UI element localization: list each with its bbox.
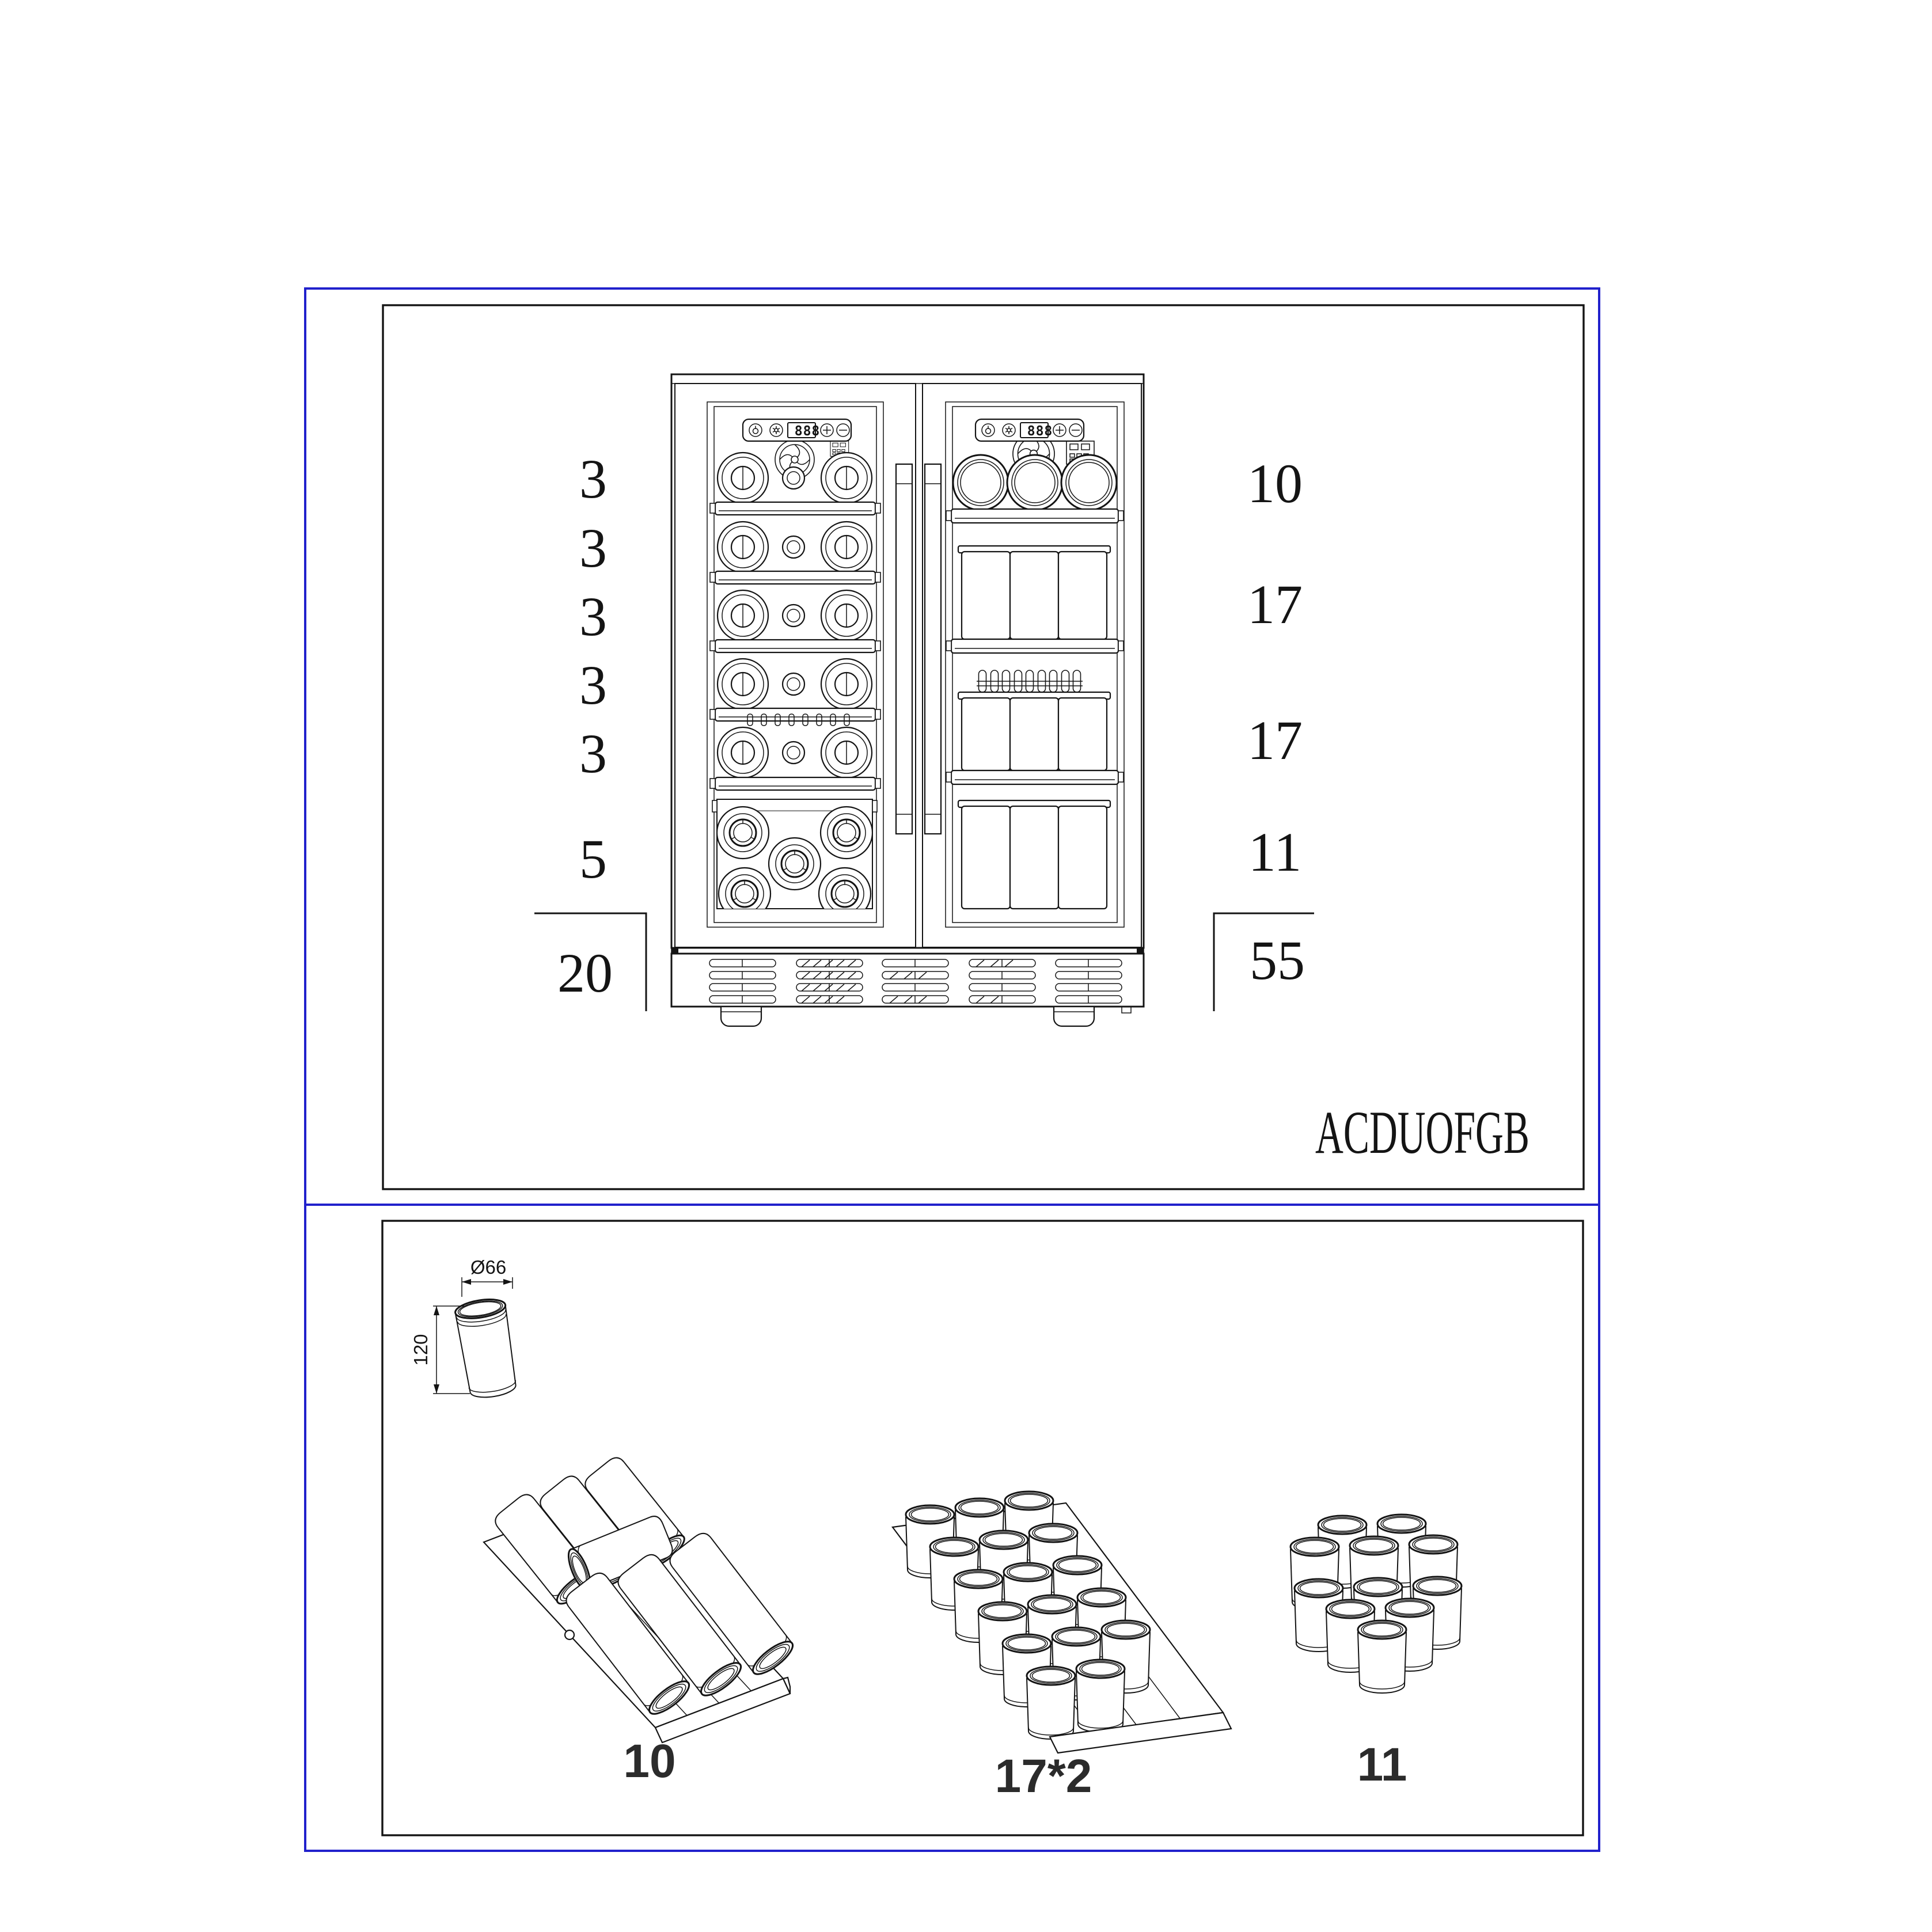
wine-shelf: [710, 640, 880, 652]
right-door-handle: [925, 464, 941, 834]
wine-bottle-row: [718, 659, 872, 709]
wine-shelf: [710, 708, 880, 721]
can-block-3: [958, 800, 1110, 909]
foot: [1054, 1007, 1094, 1026]
wine-bottle-row: [718, 590, 872, 641]
arrangement-count-label: 11: [1357, 1739, 1407, 1791]
shelf-count-label: 3: [579, 654, 607, 716]
can-block-2: [958, 692, 1110, 770]
shelf-count-label: 3: [579, 723, 607, 784]
bottle-neck-row: [977, 670, 1083, 692]
shelf-count-label: 17: [1247, 709, 1303, 771]
arrangement-count-label: 10: [623, 1735, 675, 1787]
shelf-count-label: 3: [579, 448, 607, 510]
arrangement-lying-cans: [484, 1454, 797, 1743]
wine-shelf: [710, 777, 880, 790]
can-shelf: [946, 509, 1123, 523]
standing-bottle-section: [712, 799, 877, 920]
can-block-1: [958, 546, 1110, 639]
arrangement-standing-cans: [893, 1491, 1231, 1753]
shelf-count-label: 17: [1247, 574, 1303, 635]
shelf-count-label: 11: [1248, 821, 1301, 883]
beverage-zone-door: [923, 384, 1141, 947]
model-code: ACDUOFGB: [1315, 1099, 1529, 1166]
wine-bottle-row: [718, 727, 872, 778]
base-tab: [1122, 1007, 1131, 1013]
vent-grille: [671, 954, 1144, 1007]
lying-can-row: [953, 455, 1117, 510]
wine-bottle-row: [718, 522, 872, 572]
can-diameter-dimension: Ø66: [470, 1257, 506, 1278]
shelf-count-label: 10: [1247, 453, 1303, 514]
temperature-display: 888: [1027, 424, 1053, 439]
shelf-count-label: 3: [579, 586, 607, 647]
zone-total-label: 55: [1250, 929, 1305, 991]
dual-zone-cooler-front-view: [671, 374, 1144, 1026]
arrangement-can-stack: [1290, 1515, 1462, 1693]
manual-page: 3 3 3 3 3 5 20 10 17 17 11 55 888 888 AC…: [0, 0, 1932, 1932]
arrangement-count-label: 17*2: [995, 1750, 1092, 1802]
can-height-dimension: 120: [410, 1334, 431, 1365]
wine-shelf: [710, 502, 880, 515]
shelf-count-label: 3: [579, 517, 607, 579]
left-door-handle: [896, 464, 912, 834]
can-shelf: [946, 639, 1123, 653]
temperature-display: 888: [795, 424, 821, 439]
wine-zone-door: [675, 384, 916, 947]
can-dimension-drawing: Ø66 120: [410, 1257, 519, 1400]
foot: [721, 1007, 761, 1026]
wine-shelf: [710, 571, 880, 584]
can-shelf: [946, 770, 1123, 784]
shelf-count-label: 5: [579, 828, 607, 890]
technical-drawing: 3 3 3 3 3 5 20 10 17 17 11 55 888 888 AC…: [0, 0, 1932, 1932]
zone-total-label: 20: [557, 942, 613, 1004]
